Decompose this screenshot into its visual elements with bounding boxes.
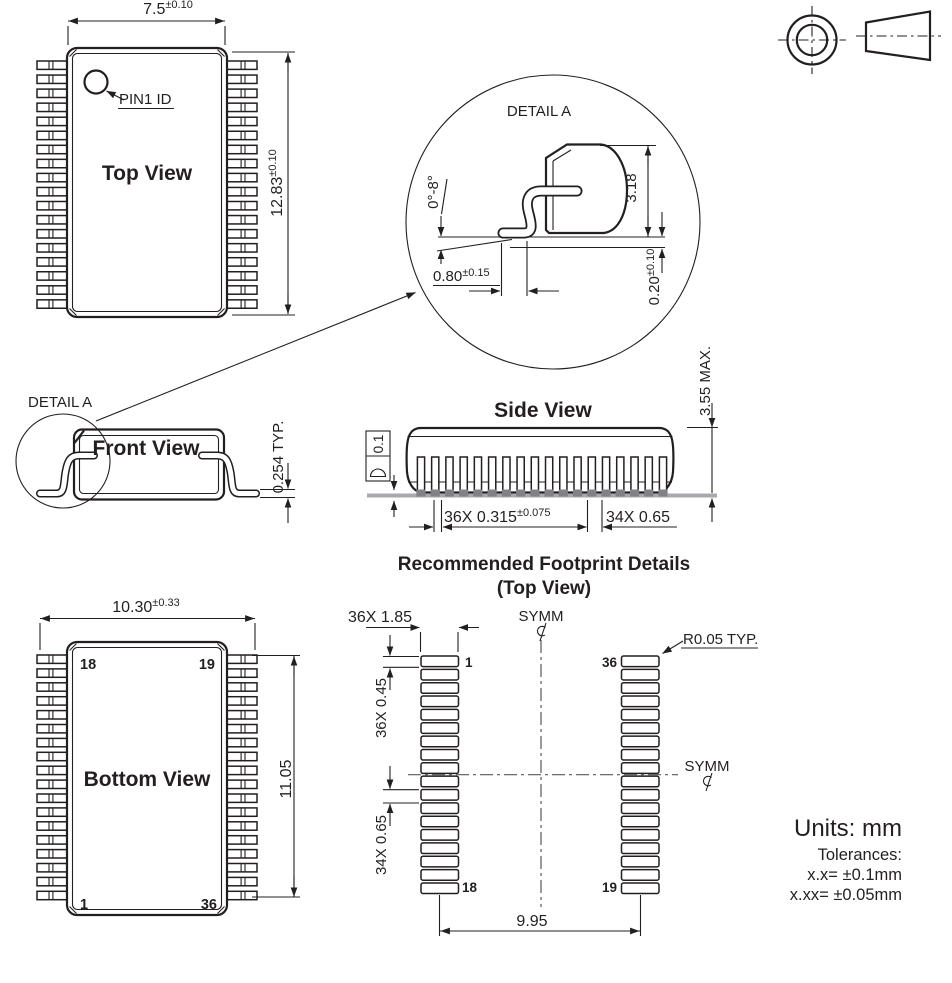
pin	[37, 272, 67, 280]
tolerance-note-2: x.xx= ±0.05mm	[790, 886, 902, 904]
pad	[622, 856, 660, 867]
lead	[417, 457, 424, 493]
pin	[37, 173, 67, 181]
pin	[227, 103, 257, 111]
pad	[421, 723, 459, 734]
projection-angle-symbol	[778, 6, 941, 74]
pin	[37, 89, 67, 97]
pin	[37, 808, 67, 816]
pin	[227, 850, 257, 858]
footprint-pin18-label: 18	[462, 880, 478, 895]
pad	[622, 776, 660, 787]
pad	[622, 870, 660, 881]
span-dim: 10.30±0.33	[112, 597, 180, 616]
lead-foot	[601, 490, 610, 497]
span-dim: 9.95	[516, 913, 547, 930]
pad	[421, 656, 459, 667]
lead	[617, 457, 624, 493]
lead	[546, 457, 553, 493]
pin	[227, 697, 257, 705]
pin	[37, 877, 67, 885]
angled-seating-line	[437, 240, 512, 252]
pad-length-dim: 36X 1.85	[348, 609, 412, 626]
side-view-title: Side View	[494, 399, 592, 422]
pad	[622, 696, 660, 707]
pin	[227, 794, 257, 802]
pad	[421, 856, 459, 867]
pin	[37, 187, 67, 195]
bottom-view-title: Bottom View	[84, 768, 211, 791]
lead-foot	[416, 490, 425, 497]
pin	[227, 808, 257, 816]
pin	[37, 822, 67, 830]
pin	[227, 836, 257, 844]
pin	[227, 655, 257, 663]
top-view-pins-left	[37, 61, 67, 308]
lead-foot	[502, 490, 511, 497]
pin	[37, 145, 67, 153]
pin1-id-marker	[85, 71, 108, 94]
pin	[37, 697, 67, 705]
pin	[227, 752, 257, 760]
pad	[622, 723, 660, 734]
pin	[37, 300, 67, 308]
dim-value: 12.83	[269, 177, 286, 217]
tolerances-title: Tolerances:	[818, 846, 902, 864]
pin	[227, 244, 257, 252]
dim-value: 0.80	[433, 268, 462, 285]
pin	[227, 159, 257, 167]
pin	[227, 258, 257, 266]
dim-tolerance: ±0.15	[462, 267, 489, 279]
lead	[588, 457, 595, 493]
footprint-subtitle: (Top View)	[497, 578, 591, 599]
lead-foot	[559, 490, 568, 497]
dim-tolerance: ±0.33	[152, 597, 179, 609]
lead	[517, 457, 524, 493]
pin	[227, 725, 257, 733]
pin	[37, 286, 67, 294]
pin	[37, 117, 67, 125]
pin	[227, 131, 257, 139]
lead-foot	[516, 490, 525, 497]
lead	[460, 457, 467, 493]
pin	[227, 877, 257, 885]
pin	[37, 738, 67, 746]
pad	[622, 790, 660, 801]
pin	[227, 738, 257, 746]
lead-thickness-dim: 0.254 TYP.	[270, 421, 287, 494]
lead-foot	[459, 490, 468, 497]
pad	[421, 790, 459, 801]
pad	[421, 776, 459, 787]
pin	[227, 61, 257, 69]
pin	[227, 216, 257, 224]
pad	[421, 883, 459, 894]
angle-leader	[442, 179, 448, 214]
pad	[622, 683, 660, 694]
lead-width-dim: 36X 0.315±0.075	[444, 507, 551, 526]
pin	[37, 850, 67, 858]
pin	[37, 752, 67, 760]
pad	[421, 816, 459, 827]
footprint-title: Recommended Footprint Details	[398, 554, 690, 575]
symm-label-right: SYMM	[685, 758, 730, 775]
pad	[421, 803, 459, 814]
dim-tolerance: ±0.10	[165, 0, 192, 11]
pin	[227, 822, 257, 830]
lead-foot	[545, 490, 554, 497]
top-view-length-dim: 12.83±0.10	[267, 149, 286, 217]
pad	[421, 749, 459, 760]
pad-width-dim: 36X 0.45	[373, 678, 390, 738]
pin	[37, 244, 67, 252]
pin	[37, 683, 67, 691]
pin	[37, 202, 67, 210]
lead-foot	[488, 490, 497, 497]
dim-value: 7.5	[143, 1, 165, 18]
pin	[227, 173, 257, 181]
front-view: DETAIL A Front View 0.254 TYP.	[16, 394, 295, 523]
pin	[37, 230, 67, 238]
dim-value: 36X 0.315	[444, 509, 517, 526]
footprint-pin1-label: 1	[465, 655, 473, 670]
pad	[421, 669, 459, 680]
pad	[622, 830, 660, 841]
symm-label-top: SYMM	[519, 608, 564, 625]
pad	[622, 843, 660, 854]
max-height-dim: 3.55 MAX.	[697, 346, 714, 416]
pin	[227, 300, 257, 308]
tolerance-note-1: x.x= ±0.1mm	[807, 866, 902, 884]
pin	[37, 794, 67, 802]
lead-pitch-dim: 34X 0.65	[606, 509, 670, 526]
lead	[432, 457, 439, 493]
notes-block: Units: mm Tolerances: x.x= ±0.1mm x.xx= …	[790, 815, 902, 904]
pin	[227, 230, 257, 238]
pin	[227, 286, 257, 294]
dim-tolerance: ±0.075	[517, 507, 551, 519]
lead	[503, 457, 510, 493]
dim-value: 0.20	[646, 276, 663, 305]
pad	[421, 763, 459, 774]
lead-foot	[473, 490, 482, 497]
pad	[622, 656, 660, 667]
pin	[37, 159, 67, 167]
pin	[227, 711, 257, 719]
standoff-dim: 0.20±0.10	[645, 249, 663, 306]
pad	[622, 736, 660, 747]
pad	[421, 843, 459, 854]
dim-tolerance: ±0.10	[645, 249, 657, 276]
lead	[659, 457, 666, 493]
lead-foot	[445, 490, 454, 497]
pin	[227, 272, 257, 280]
flatness-value: 0.1	[371, 435, 386, 454]
front-view-detail-label: DETAIL A	[28, 394, 92, 411]
lead-foot	[658, 490, 667, 497]
pin	[227, 669, 257, 677]
front-view-title: Front View	[93, 437, 201, 460]
pin	[227, 202, 257, 210]
pin	[37, 61, 67, 69]
pin	[227, 864, 257, 872]
lead	[645, 457, 652, 493]
lead-angle-dim: 0°-8°	[425, 175, 442, 209]
bottom-view-pin19-label: 19	[199, 657, 215, 673]
bottom-view: 18 19 1 36 Bottom View 10.30±0.33 11.05	[37, 597, 300, 915]
footprint-pin19-label: 19	[602, 880, 617, 895]
detail-a-label: DETAIL A	[507, 103, 571, 120]
lead	[489, 457, 496, 493]
pad	[421, 830, 459, 841]
pin	[37, 711, 67, 719]
bottom-view-pin18-label: 18	[80, 657, 96, 673]
pin	[227, 145, 257, 153]
package-drawing: PIN1 ID Top View 7.5±0.10 12.83±0.10 DET…	[0, 0, 952, 983]
pad	[622, 669, 660, 680]
lead	[474, 457, 481, 493]
footprint-pin36-label: 36	[602, 655, 618, 670]
lead-foot	[573, 490, 582, 497]
pin	[37, 131, 67, 139]
lead	[531, 457, 538, 493]
pin	[37, 669, 67, 677]
dim-tolerance: ±0.10	[267, 149, 279, 176]
pin	[37, 891, 67, 899]
pin	[227, 75, 257, 83]
pad	[421, 870, 459, 881]
lead-foot	[644, 490, 653, 497]
pin	[227, 187, 257, 195]
pad-row-length-dim: 11.05	[278, 759, 295, 798]
bottom-view-pins-right	[227, 655, 257, 900]
pad	[622, 883, 660, 894]
pad	[421, 736, 459, 747]
pad-pitch-dim: 34X 0.65	[373, 815, 390, 875]
pad	[421, 683, 459, 694]
pin1-id-label: PIN1 ID	[119, 91, 172, 108]
lead-foot	[587, 490, 596, 497]
pin	[227, 117, 257, 125]
pin	[227, 89, 257, 97]
pad	[421, 709, 459, 720]
lead	[602, 457, 609, 493]
bottom-view-pin36-label: 36	[201, 897, 217, 913]
pin	[227, 683, 257, 691]
pin	[37, 75, 67, 83]
lead-foot	[616, 490, 625, 497]
pin	[37, 103, 67, 111]
lead-foot	[431, 490, 440, 497]
pin	[37, 258, 67, 266]
pin	[37, 216, 67, 224]
pin	[37, 864, 67, 872]
dim-value: 10.30	[112, 599, 152, 616]
lead	[631, 457, 638, 493]
pad	[622, 709, 660, 720]
top-view-pins-right	[227, 61, 257, 308]
body-height-dim: 3.18	[623, 173, 640, 202]
top-view-width-dim: 7.5±0.10	[143, 0, 193, 18]
pad	[622, 749, 660, 760]
top-view-title: Top View	[102, 162, 193, 185]
pad	[421, 696, 459, 707]
pin	[37, 780, 67, 788]
lead	[574, 457, 581, 493]
units-note: Units: mm	[794, 815, 902, 842]
lead	[446, 457, 453, 493]
lead-foot	[630, 490, 639, 497]
pad	[622, 816, 660, 827]
top-view: PIN1 ID Top View 7.5±0.10 12.83±0.10	[37, 0, 295, 317]
pin	[37, 836, 67, 844]
corner-radius-dim: R0.05 TYP.	[683, 631, 758, 648]
pin	[227, 891, 257, 899]
pin	[37, 766, 67, 774]
side-view: Side View 0.1 36X 0.315±0.075 34X 0.65 3…	[366, 346, 718, 532]
lead-foot	[530, 490, 539, 497]
footprint-view: Recommended Footprint Details (Top View)…	[348, 554, 758, 936]
lead	[560, 457, 567, 493]
pin	[37, 655, 67, 663]
package-drawing-page: PIN1 ID Top View 7.5±0.10 12.83±0.10 DET…	[0, 0, 952, 983]
foot-length-dim: 0.80±0.15	[433, 267, 490, 285]
leader-arrow	[663, 641, 684, 654]
bottom-view-pin1-label: 1	[80, 897, 88, 913]
pin	[37, 725, 67, 733]
pin	[227, 780, 257, 788]
projection-circle-outer	[788, 16, 837, 65]
bottom-view-pins-left	[37, 655, 67, 900]
pad	[622, 763, 660, 774]
pin	[227, 766, 257, 774]
pad	[622, 803, 660, 814]
